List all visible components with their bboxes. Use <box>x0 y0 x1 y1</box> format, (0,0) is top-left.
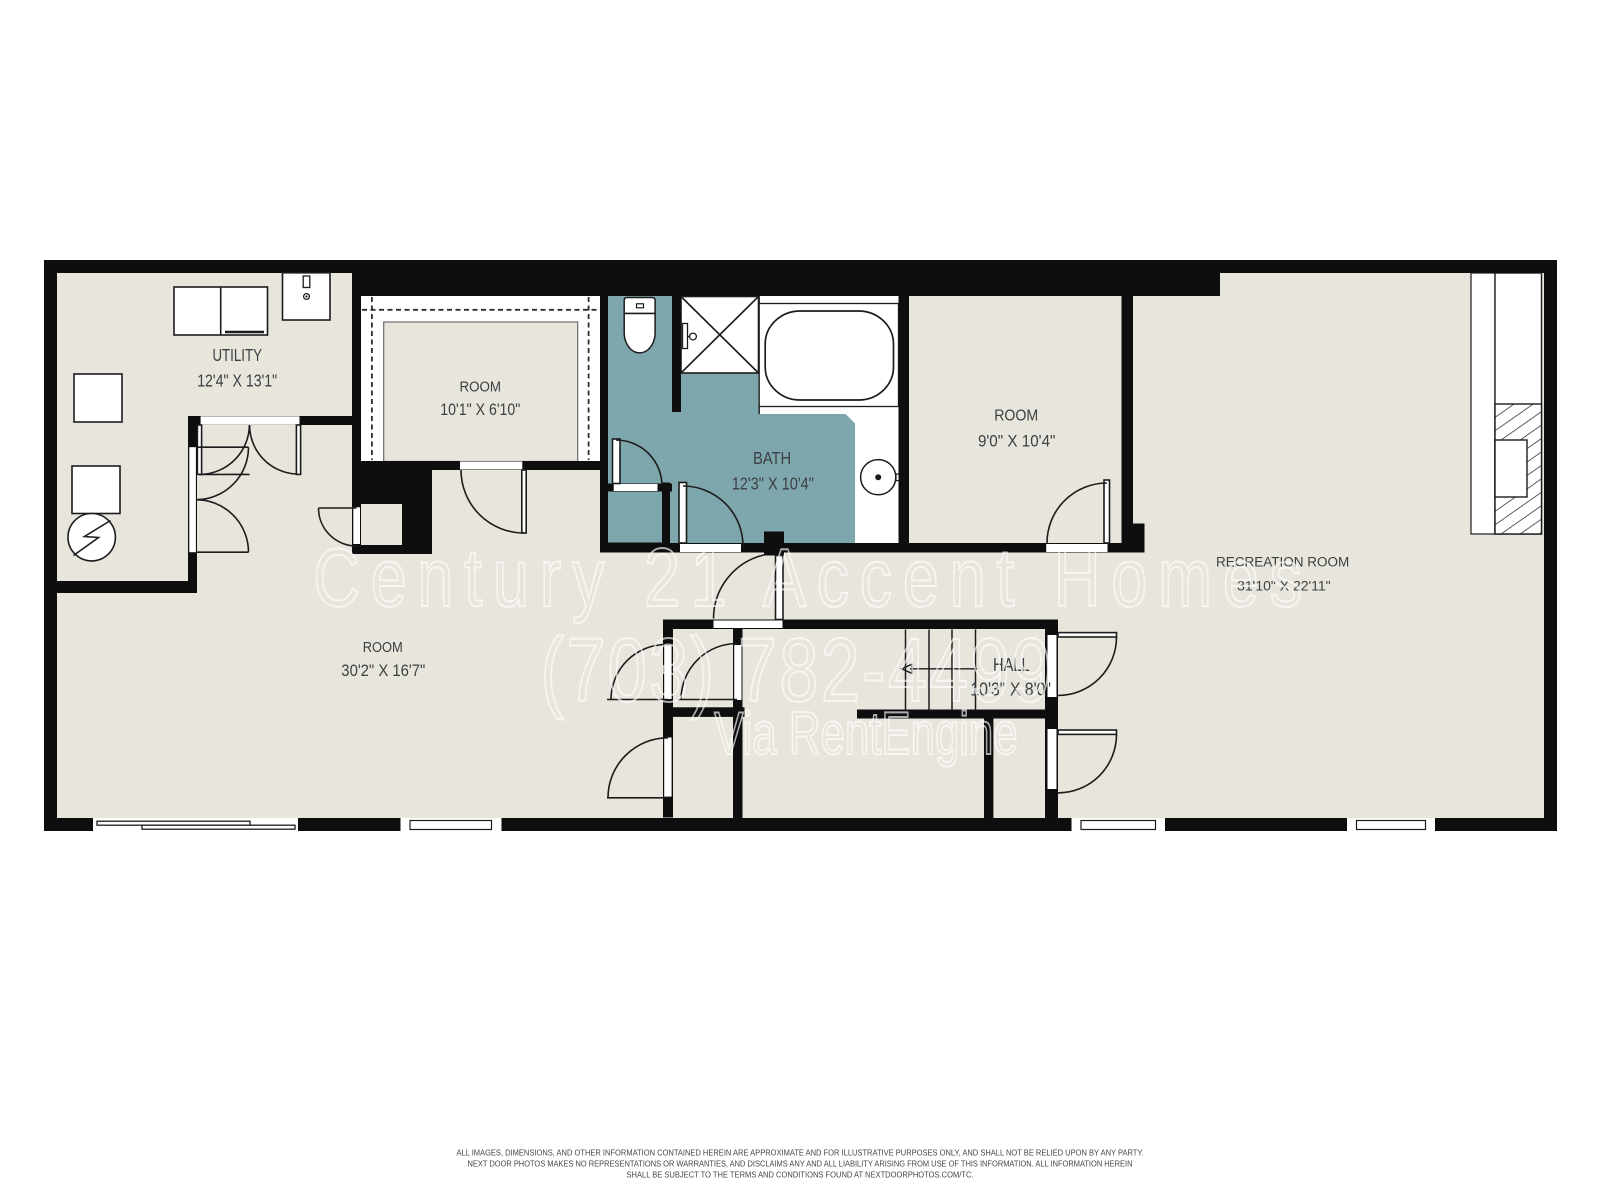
svg-text:Via RentEngine: Via RentEngine <box>714 700 1018 767</box>
svg-text:ROOM: ROOM <box>363 640 403 656</box>
svg-text:12'3" X 10'4": 12'3" X 10'4" <box>732 474 814 494</box>
svg-text:9'0" X 10'4": 9'0" X 10'4" <box>978 432 1056 451</box>
svg-text:10'1" X 6'10": 10'1" X 6'10" <box>440 401 520 419</box>
svg-text:BATH: BATH <box>753 448 791 468</box>
svg-text:Century 21 Accent Homes: Century 21 Accent Homes <box>313 531 1313 624</box>
svg-text:ALL IMAGES, DIMENSIONS, AND OT: ALL IMAGES, DIMENSIONS, AND OTHER INFORM… <box>457 1148 1144 1158</box>
svg-text:ROOM: ROOM <box>460 378 502 395</box>
svg-text:UTILITY: UTILITY <box>212 345 262 365</box>
svg-text:SHALL BE SUBJECT TO THE TERMS: SHALL BE SUBJECT TO THE TERMS AND CONDIT… <box>627 1170 974 1180</box>
svg-text:30'2" X 16'7": 30'2" X 16'7" <box>341 661 425 680</box>
svg-text:NEXT DOOR PHOTOS MAKES NO REPR: NEXT DOOR PHOTOS MAKES NO REPRESENTATION… <box>468 1159 1133 1169</box>
svg-text:12'4" X 13'1": 12'4" X 13'1" <box>197 370 277 390</box>
svg-text:ROOM: ROOM <box>994 408 1038 425</box>
